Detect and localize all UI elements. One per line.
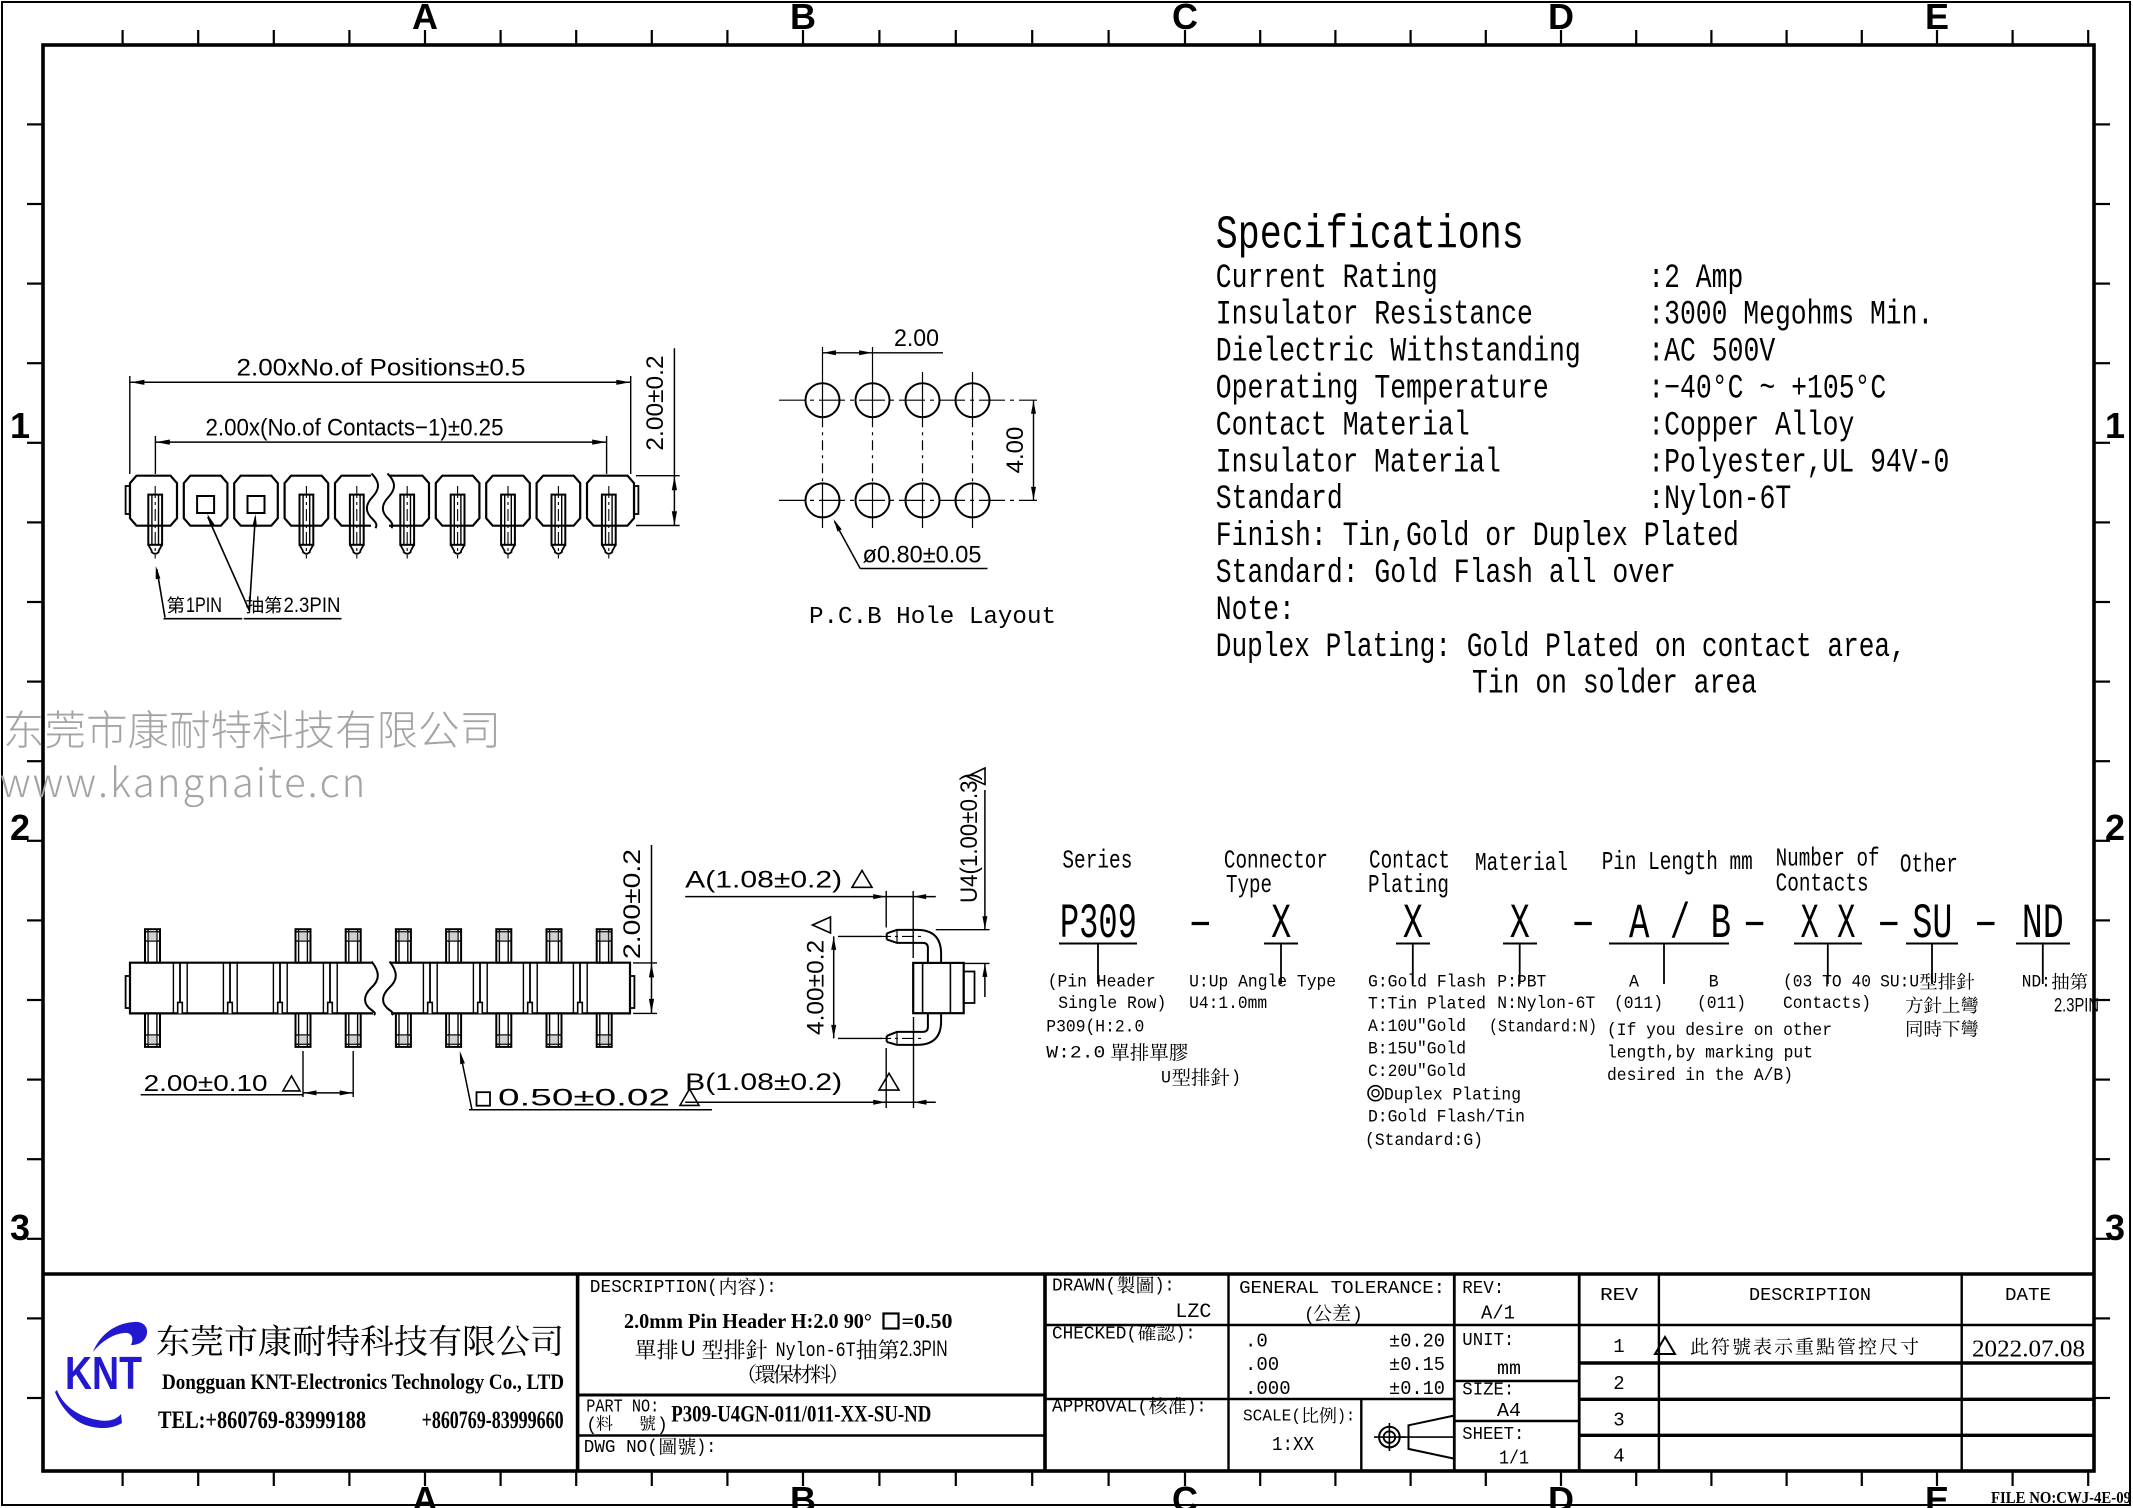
svg-text:D: D: [1548, 0, 1574, 37]
svg-text::−40°C ~ +105°C: :−40°C ~ +105°C: [1648, 371, 1886, 409]
svg-text:):: ):: [1187, 1397, 1207, 1417]
svg-text:Current Rating: Current Rating: [1216, 260, 1438, 298]
svg-text:REV: REV: [1600, 1286, 1638, 1306]
svg-text:C:20U"Gold: C:20U"Gold: [1368, 1062, 1466, 1082]
svg-text:1: 1: [1613, 1336, 1624, 1358]
svg-text::Polyester,UL 94V-0: :Polyester,UL 94V-0: [1648, 444, 1949, 482]
svg-text:SIZE:: SIZE:: [1462, 1381, 1514, 1401]
svg-text:CHECKED(: CHECKED(: [1052, 1324, 1137, 1344]
svg-text:Single Row): Single Row): [1058, 994, 1166, 1014]
svg-text:P.C.B Hole Layout: P.C.B Hole Layout: [809, 604, 1056, 631]
svg-text:PART NO:: PART NO:: [586, 1398, 659, 1418]
svg-text:(Pin Header: (Pin Header: [1048, 972, 1156, 992]
svg-text:±0.10: ±0.10: [1389, 1378, 1445, 1400]
svg-text:Other: Other: [1900, 850, 1958, 880]
svg-text:E: E: [1925, 1479, 1949, 1508]
svg-text:Duplex Plating: Gold Plated on: Duplex Plating: Gold Plated on contact a…: [1216, 629, 1906, 667]
svg-text:): ): [657, 1416, 668, 1436]
svg-text:APPROVAL(: APPROVAL(: [1052, 1397, 1148, 1417]
svg-text:DWG NO(: DWG NO(: [584, 1438, 658, 1458]
svg-text:1PIN: 1PIN: [186, 594, 222, 617]
svg-text:W:2.0: W:2.0: [1046, 1044, 1105, 1064]
svg-text:A: A: [1629, 972, 1639, 992]
svg-text:2: 2: [1613, 1373, 1624, 1395]
svg-text:2.00x(No.of Contacts−1)±0.25: 2.00x(No.of Contacts−1)±0.25: [206, 414, 504, 441]
svg-text:2.0mm Pin Header H:2.0 90°: 2.0mm Pin Header H:2.0 90°: [624, 1309, 872, 1333]
svg-text:REV:: REV:: [1462, 1279, 1504, 1299]
svg-text:Series: Series: [1062, 845, 1132, 875]
svg-text:GENERAL TOLERANCE:: GENERAL TOLERANCE:: [1239, 1279, 1445, 1299]
svg-text::Nylon-6T: :Nylon-6T: [1648, 481, 1791, 519]
svg-text:ND:: ND:: [2022, 972, 2051, 992]
svg-text:ø0.80±0.05: ø0.80±0.05: [863, 542, 982, 569]
svg-text:Duplex Plating: Duplex Plating: [1384, 1086, 1521, 1106]
svg-text:(011): (011): [1614, 994, 1663, 1014]
svg-text::2 Amp: :2 Amp: [1648, 260, 1743, 298]
svg-text:Note:: Note:: [1216, 592, 1295, 630]
svg-text:=0.50: =0.50: [902, 1309, 953, 1333]
svg-text:):: ):: [757, 1278, 777, 1298]
svg-text:±0.15: ±0.15: [1389, 1354, 1445, 1376]
svg-text:A(1.08±0.2): A(1.08±0.2): [685, 866, 842, 893]
svg-text:C: C: [1172, 0, 1198, 37]
svg-text:1: 1: [10, 405, 30, 446]
svg-text:B:15U"Gold: B:15U"Gold: [1368, 1040, 1466, 1060]
svg-text:2: 2: [2105, 807, 2125, 848]
svg-text:2.00: 2.00: [894, 325, 939, 352]
svg-text:2.3PIN: 2.3PIN: [2054, 996, 2099, 1017]
svg-text:length,by marking put: length,by marking put: [1607, 1043, 1813, 1063]
svg-text:KNT: KNT: [65, 1347, 142, 1399]
svg-text:Finish: Tin,Gold or Duplex Pla: Finish: Tin,Gold or Duplex Plated: [1216, 518, 1739, 556]
svg-text:.00: .00: [1245, 1354, 1279, 1376]
svg-text:1: 1: [2105, 405, 2125, 446]
svg-text:B: B: [790, 1479, 816, 1508]
svg-text:2.00±0.2: 2.00±0.2: [619, 849, 646, 959]
svg-text:4: 4: [1613, 1446, 1624, 1468]
svg-text:4.00: 4.00: [1002, 427, 1029, 474]
svg-text:):: ):: [1176, 1324, 1196, 1344]
svg-text:A/1: A/1: [1481, 1303, 1515, 1325]
svg-text:UNIT:: UNIT:: [1462, 1331, 1514, 1351]
svg-text:(: (: [586, 1416, 597, 1436]
svg-text:D: D: [1548, 1479, 1574, 1508]
svg-text:2.3PIN: 2.3PIN: [284, 594, 341, 617]
svg-text:0.50±0.02: 0.50±0.02: [498, 1084, 670, 1111]
svg-text:4.00±0.2: 4.00±0.2: [803, 940, 830, 1035]
svg-text:(: (: [1304, 1306, 1315, 1326]
svg-text:C: C: [1172, 1479, 1198, 1508]
svg-text:.000: .000: [1245, 1378, 1291, 1400]
svg-text:Insulator Resistance: Insulator Resistance: [1216, 297, 1533, 335]
svg-text:A:10U"Gold: A:10U"Gold: [1368, 1017, 1466, 1037]
svg-text:Dongguan KNT-Electronics Techn: Dongguan KNT-Electronics Technology Co.,…: [162, 1369, 564, 1394]
svg-text:+860769-83999660: +860769-83999660: [422, 1407, 564, 1434]
svg-text:U4(1.00±0.3): U4(1.00±0.3): [956, 773, 983, 903]
svg-text:Standard: Standard: [1216, 481, 1343, 519]
svg-text:Dielectric Withstanding: Dielectric Withstanding: [1216, 334, 1581, 372]
svg-text:Insulator Material: Insulator Material: [1216, 444, 1501, 482]
svg-text:Operating Temperature: Operating Temperature: [1216, 371, 1549, 409]
svg-text::AC 500V: :AC 500V: [1648, 334, 1775, 372]
svg-text:Contacts): Contacts): [1783, 994, 1871, 1014]
svg-text:Standard: Gold Flash all over: Standard: Gold Flash all over: [1216, 555, 1676, 593]
svg-text:N:Nylon-6T: N:Nylon-6T: [1497, 994, 1595, 1014]
svg-text:(If you desire on other: (If you desire on other: [1607, 1021, 1832, 1041]
svg-text:B: B: [1709, 972, 1719, 992]
svg-text:P309(H:2.0: P309(H:2.0: [1046, 1018, 1144, 1038]
svg-text:A4: A4: [1497, 1400, 1521, 1422]
svg-text:DESCRIPTION: DESCRIPTION: [1749, 1286, 1871, 1306]
svg-text:U:Up Angle Type: U:Up Angle Type: [1189, 972, 1336, 992]
svg-text:Type: Type: [1226, 870, 1272, 900]
svg-text:B(1.08±0.2): B(1.08±0.2): [685, 1069, 842, 1096]
svg-text:DATE: DATE: [2005, 1286, 2051, 1306]
svg-text:Material: Material: [1475, 848, 1568, 878]
svg-text:2.00xNo.of Positions±0.5: 2.00xNo.of Positions±0.5: [237, 355, 526, 382]
svg-text:U: U: [1161, 1069, 1171, 1089]
svg-text:Specifications: Specifications: [1216, 210, 1524, 263]
svg-text:2.3PIN: 2.3PIN: [900, 1336, 948, 1361]
svg-text:(011): (011): [1697, 994, 1746, 1014]
svg-text:3: 3: [2105, 1207, 2125, 1248]
svg-text:U: U: [681, 1336, 696, 1361]
svg-text:):: ):: [1155, 1277, 1175, 1297]
svg-text:): ): [1352, 1306, 1363, 1326]
svg-text:Nylon-6T: Nylon-6T: [776, 1340, 856, 1363]
svg-text:2022.07.08: 2022.07.08: [1972, 1336, 2085, 1362]
svg-text:A: A: [412, 1479, 438, 1508]
svg-text:LZC: LZC: [1175, 1301, 1211, 1324]
svg-text:TEL:+860769-83999188: TEL:+860769-83999188: [158, 1407, 366, 1434]
svg-text:desired in the A/B): desired in the A/B): [1607, 1066, 1793, 1086]
svg-text:G:Gold Flash: G:Gold Flash: [1368, 972, 1486, 992]
svg-text:B: B: [790, 0, 816, 37]
svg-text:T:Tin Plated: T:Tin Plated: [1368, 995, 1486, 1015]
svg-text:2: 2: [10, 807, 30, 848]
svg-text:DESCRIPTION(: DESCRIPTION(: [590, 1278, 718, 1298]
svg-text:1:XX: 1:XX: [1272, 1434, 1315, 1456]
svg-text:):: ):: [696, 1438, 716, 1458]
svg-text:D:Gold Flash/Tin: D:Gold Flash/Tin: [1368, 1107, 1525, 1127]
svg-text:mm: mm: [1497, 1358, 1521, 1380]
svg-text:):: ):: [1337, 1408, 1355, 1427]
svg-text:Contact Material: Contact Material: [1216, 407, 1470, 445]
svg-text:FILE NO:CWJ-4E-09: FILE NO:CWJ-4E-09: [1991, 1488, 2131, 1507]
svg-text:Tin on solder area: Tin on solder area: [1472, 666, 1757, 704]
svg-text:(Standard:N): (Standard:N): [1489, 1018, 1597, 1038]
svg-text::Copper Alloy: :Copper Alloy: [1648, 407, 1854, 445]
svg-text:3: 3: [1613, 1410, 1624, 1432]
svg-text:.0: .0: [1245, 1330, 1268, 1352]
svg-text:±0.20: ±0.20: [1389, 1330, 1445, 1352]
svg-text:2.00±0.2: 2.00±0.2: [642, 355, 669, 450]
svg-text:U4:1.0mm: U4:1.0mm: [1189, 994, 1267, 1014]
svg-text:(03 TO 40: (03 TO 40: [1783, 972, 1871, 992]
svg-text:1/1: 1/1: [1499, 1448, 1529, 1470]
svg-text:P:PBT: P:PBT: [1497, 972, 1546, 992]
svg-text:): ): [1231, 1069, 1241, 1089]
svg-text:Contacts: Contacts: [1776, 869, 1869, 899]
svg-text:P309-U4GN-011/011-XX-SU-ND: P309-U4GN-011/011-XX-SU-ND: [671, 1402, 931, 1428]
svg-text:(Standard:G): (Standard:G): [1365, 1131, 1483, 1151]
svg-text:SHEET:: SHEET:: [1462, 1425, 1524, 1445]
svg-text:3: 3: [10, 1207, 30, 1248]
svg-text:2.00±0.10: 2.00±0.10: [144, 1070, 268, 1096]
svg-text:SCALE(: SCALE(: [1243, 1408, 1301, 1427]
svg-text:SU:U: SU:U: [1880, 972, 1919, 992]
svg-text:E: E: [1925, 0, 1949, 37]
svg-text:A: A: [412, 0, 438, 37]
svg-text::3000 Megohms Min.: :3000 Megohms Min.: [1648, 297, 1933, 335]
svg-text:Pin Length mm: Pin Length mm: [1602, 847, 1753, 877]
svg-text:DRAWN(: DRAWN(: [1052, 1277, 1116, 1297]
